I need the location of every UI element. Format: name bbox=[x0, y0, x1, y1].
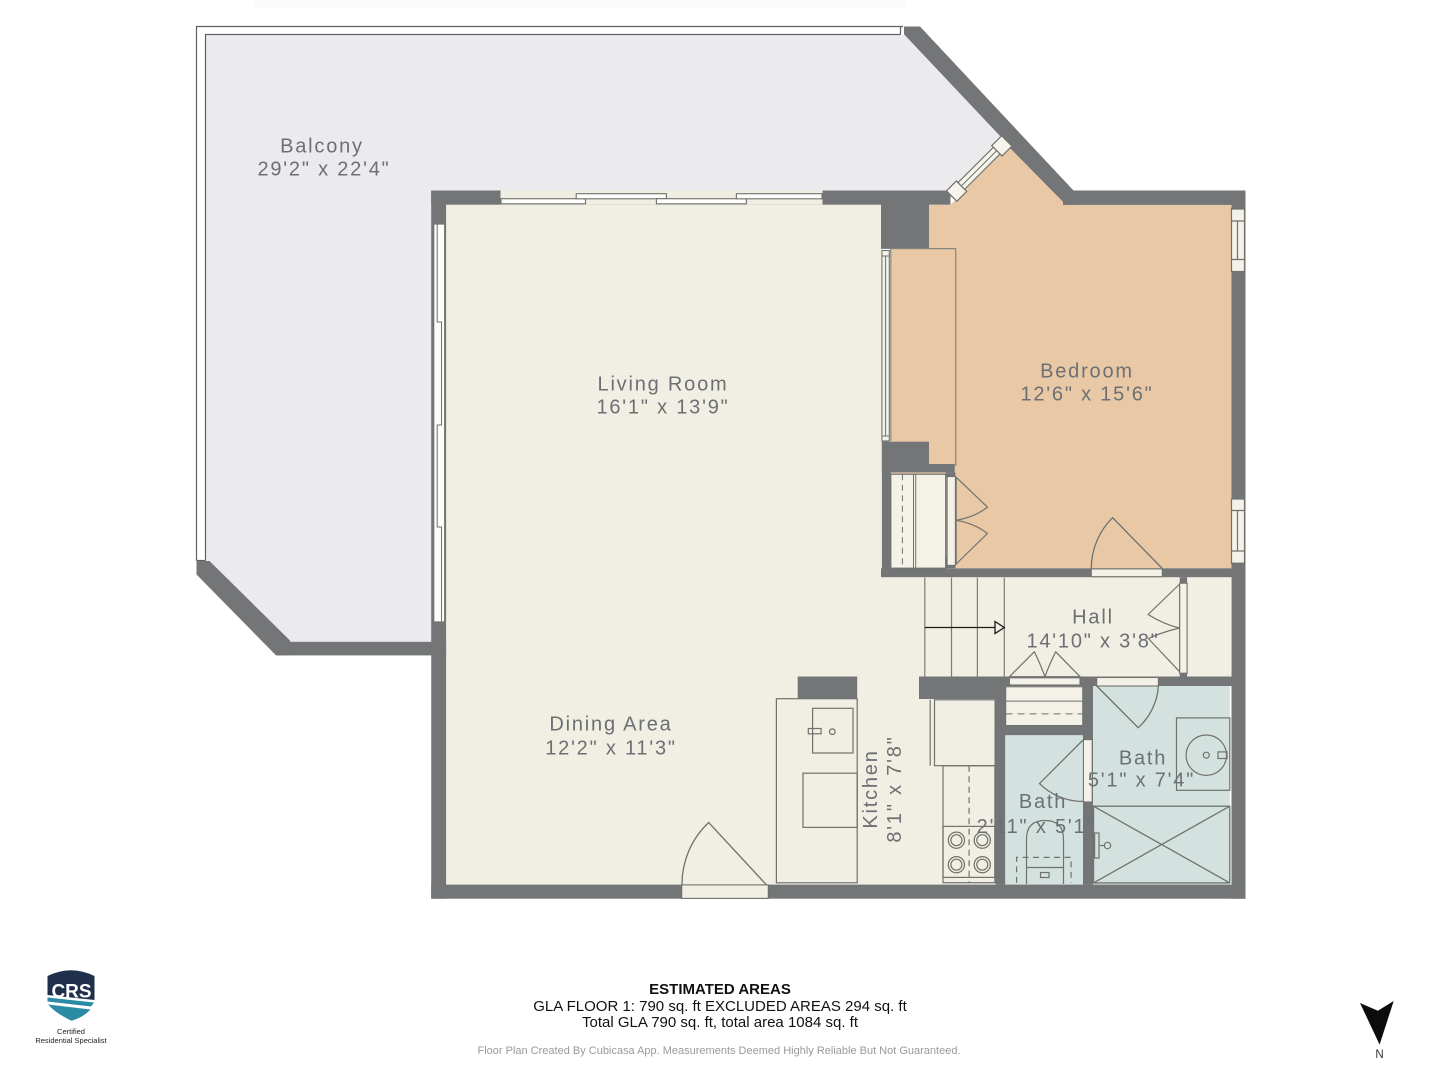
svg-text:Dining Area: Dining Area bbox=[549, 714, 672, 736]
svg-text:5'1" x 7'4": 5'1" x 7'4" bbox=[1088, 770, 1195, 792]
svg-text:12'2" x 11'3": 12'2" x 11'3" bbox=[545, 738, 677, 760]
svg-text:Residential Specialist: Residential Specialist bbox=[35, 1036, 107, 1045]
svg-text:29'2" x 22'4": 29'2" x 22'4" bbox=[257, 159, 390, 181]
svg-text:Balcony: Balcony bbox=[280, 136, 364, 158]
svg-text:Bath: Bath bbox=[1119, 748, 1167, 770]
svg-text:Certified: Certified bbox=[57, 1027, 85, 1036]
svg-text:14'10" x 3'8": 14'10" x 3'8" bbox=[1026, 631, 1159, 653]
svg-text:Total GLA 790 sq. ft, total ar: Total GLA 790 sq. ft, total area 1084 sq… bbox=[582, 1014, 859, 1031]
svg-text:Kitchen: Kitchen bbox=[860, 749, 882, 828]
svg-text:Living Room: Living Room bbox=[598, 374, 729, 396]
svg-text:12'6" x 15'6": 12'6" x 15'6" bbox=[1020, 384, 1153, 406]
svg-text:Bedroom: Bedroom bbox=[1040, 361, 1134, 383]
svg-text:N: N bbox=[1375, 1049, 1383, 1061]
svg-text:GLA FLOOR 1: 790 sq. ft EXCLUD: GLA FLOOR 1: 790 sq. ft EXCLUDED AREAS 2… bbox=[533, 998, 907, 1015]
svg-text:2'11" x 5'1": 2'11" x 5'1" bbox=[977, 816, 1096, 838]
svg-text:8'1" x 7'8": 8'1" x 7'8" bbox=[884, 735, 906, 842]
svg-text:Hall: Hall bbox=[1072, 607, 1114, 629]
svg-text:Floor Plan Created By Cubicasa: Floor Plan Created By Cubicasa App. Meas… bbox=[477, 1045, 960, 1057]
svg-text:Bath: Bath bbox=[1019, 791, 1067, 813]
svg-text:ESTIMATED AREAS: ESTIMATED AREAS bbox=[649, 981, 791, 998]
svg-text:16'1" x 13'9": 16'1" x 13'9" bbox=[596, 397, 729, 419]
